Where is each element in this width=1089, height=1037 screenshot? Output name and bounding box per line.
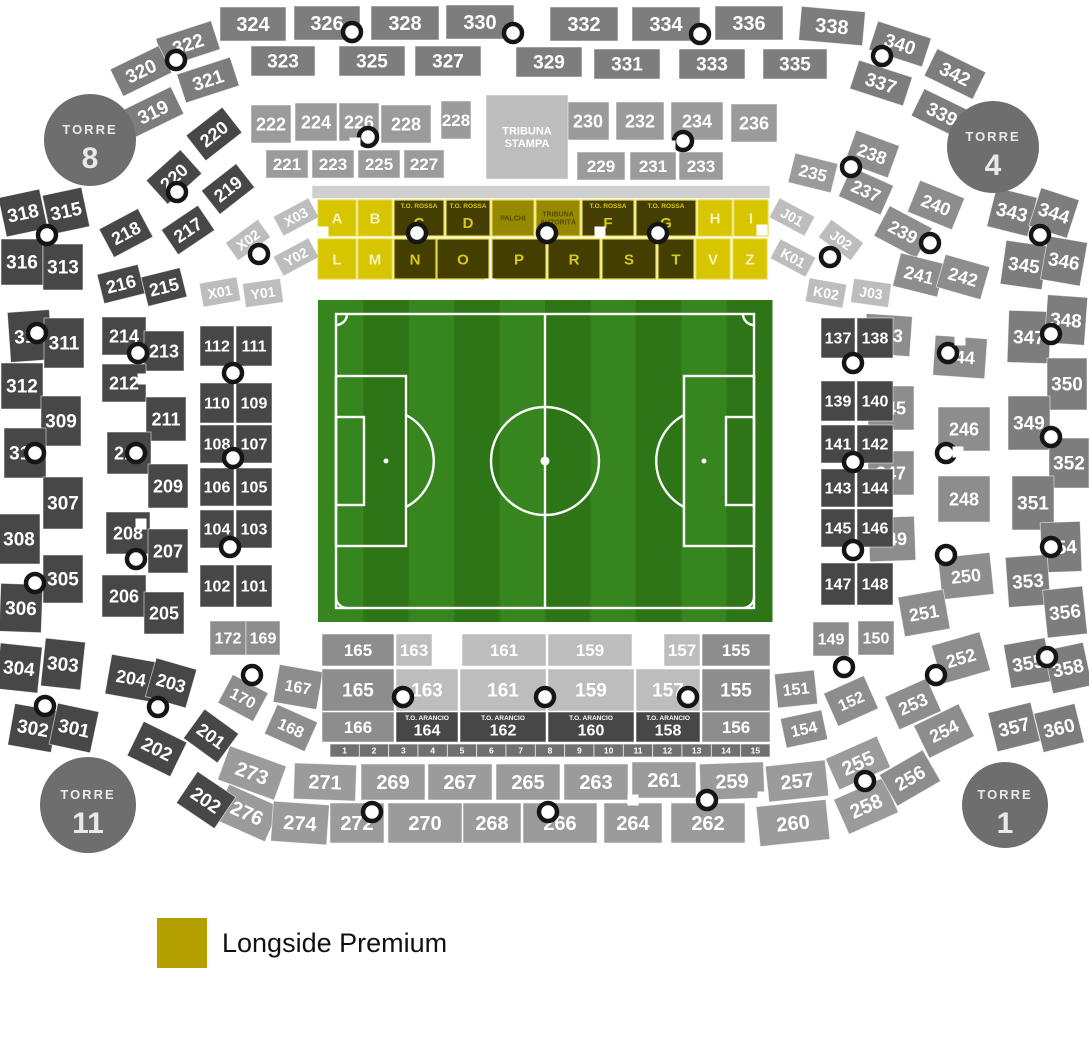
vomitory-marker-icon [757,225,768,236]
section-label: 350 [1051,375,1083,396]
section-x03[interactable]: X03 [273,198,319,236]
section-label: 137 [825,331,852,348]
svg-text:6: 6 [489,746,494,756]
section-n[interactable]: N [394,239,436,279]
gate-marker-icon [243,666,261,684]
section-label: 207 [153,541,183,561]
section-218[interactable]: 218 [99,209,153,258]
section-label: PALCHI [500,215,526,222]
section-157[interactable]: 157 [664,634,700,666]
section-label: 306 [5,598,37,620]
section-label: 262 [691,813,724,835]
section-label: 316 [6,253,38,274]
section-205[interactable]: 205 [144,592,184,634]
section-label: Z [745,251,754,268]
section-label: 328 [388,13,421,35]
svg-text:12: 12 [663,746,673,756]
section-242[interactable]: 242 [936,254,990,299]
section-350[interactable]: 350 [1047,358,1087,410]
section-label: 268 [475,813,508,835]
gate-marker-icon [937,444,955,462]
section-label: 159 [576,641,604,660]
section-151[interactable]: 151 [774,670,817,708]
section-label: M [369,251,382,268]
section-label: 271 [308,771,342,794]
section-155[interactable]: 155 [702,634,770,666]
section-248[interactable]: 248 [938,476,990,522]
section-label: 159 [575,681,607,702]
section-303[interactable]: 303 [41,638,86,690]
section-label: 260 [775,811,810,836]
section-label: 234 [682,111,712,131]
section-110[interactable]: 110 [200,383,234,423]
section-x01[interactable]: X01 [199,277,241,307]
gate-marker-icon [691,25,709,43]
section-241[interactable]: 241 [893,253,946,297]
section-label: 312 [6,377,38,398]
section-332[interactable]: 332 [550,7,618,41]
gate-marker-icon [221,538,239,556]
section-345[interactable]: 345 [1000,240,1048,289]
torre-number: 4 [985,149,1002,182]
section-269[interactable]: 269 [361,764,425,800]
section-309[interactable]: 309 [41,396,81,446]
section-label: 146 [862,521,889,538]
row-number-cell: 3 [389,744,418,757]
section-343[interactable]: 343 [987,188,1037,237]
section-label: 304 [2,657,36,681]
section-k02[interactable]: K02 [805,278,847,308]
section-j03[interactable]: J03 [851,278,892,307]
section-label: 307 [47,494,79,515]
section-label: V [708,251,718,268]
section-label: 155 [722,641,750,660]
section-r[interactable]: R [548,239,600,279]
section-101[interactable]: 101 [236,565,272,607]
section-217[interactable]: 217 [161,205,214,254]
section-150[interactable]: 150 [858,621,894,655]
gate-marker-icon [26,574,44,592]
section-138[interactable]: 138 [857,318,893,358]
section-308[interactable]: 308 [0,514,40,564]
section-label: 161 [490,641,518,660]
section-label: 333 [696,55,728,76]
section-211[interactable]: 211 [146,397,186,441]
section-label: 263 [579,772,612,794]
section-label: 104 [204,522,231,539]
section-label: 105 [241,480,268,497]
row-number-cell: 1 [330,744,359,757]
section-106[interactable]: 106 [200,468,234,506]
section-202[interactable]: 202 [127,721,187,776]
section-268[interactable]: 268 [463,803,521,843]
section-137[interactable]: 137 [821,318,855,358]
tier-bar [312,186,770,199]
section-143[interactable]: 143 [821,469,855,507]
section-222[interactable]: 222 [251,105,291,143]
section-103[interactable]: 103 [236,510,272,548]
section-323[interactable]: 323 [251,46,315,76]
section-231[interactable]: 231 [630,152,676,180]
section-267[interactable]: 267 [428,764,492,800]
section-266[interactable]: 266 [523,803,597,843]
section-167[interactable]: 167 [273,664,323,709]
section-label: 331 [611,55,643,76]
gate-marker-icon [842,158,860,176]
section-label: 221 [273,155,301,174]
section-label: 356 [1048,601,1082,625]
section-label: 250 [950,565,982,588]
section-342[interactable]: 342 [924,49,986,100]
section-331[interactable]: 331 [594,49,660,79]
section-label: 351 [1017,494,1049,515]
section-159[interactable]: 159 [548,634,632,666]
section-d[interactable]: T.O. ROSSAD [446,200,490,236]
section-216[interactable]: 216 [97,264,145,303]
section-328[interactable]: 328 [371,6,439,40]
section-sublabel: T.O. ARANCIO [646,715,690,722]
section-109[interactable]: 109 [236,383,272,423]
section-label: 313 [47,258,79,279]
section-label: TRIBUNA [542,211,574,218]
section-159[interactable]: 159 [548,669,634,711]
gate-marker-icon [408,224,426,242]
section-k01[interactable]: K01 [770,239,816,277]
vomitory-marker-icon [350,138,361,149]
section-236[interactable]: 236 [731,104,777,142]
section-label: 257 [779,769,814,794]
gate-marker-icon [835,658,853,676]
row-number-cell: 14 [711,744,740,757]
gate-marker-icon [821,248,839,266]
section-351[interactable]: 351 [1012,476,1054,530]
section-270[interactable]: 270 [388,803,462,843]
section-312[interactable]: 312 [1,363,43,409]
vomitory-marker-icon [318,227,329,238]
section-139[interactable]: 139 [821,381,855,421]
section-165[interactable]: 165 [322,669,394,711]
section-label: 259 [715,770,749,793]
section-158[interactable]: T.O. ARANCIO158 [636,712,700,742]
section-label: D [463,215,474,232]
section-149[interactable]: 149 [813,622,849,656]
row-number-cell: 9 [565,744,594,757]
section-229[interactable]: 229 [577,152,625,180]
section-324[interactable]: 324 [220,7,286,41]
section-label: 232 [625,111,655,131]
svg-text:3: 3 [401,746,406,756]
section-f[interactable]: T.O. ROSSAF [582,200,634,236]
vomitory-marker-icon [953,447,964,458]
section-224[interactable]: 224 [295,103,337,141]
section-327[interactable]: 327 [415,46,481,76]
section-b[interactable]: B [358,200,392,236]
section-357[interactable]: 357 [988,702,1040,751]
section-251[interactable]: 251 [898,589,950,636]
torre-8: TORRE8 [44,94,136,186]
section-140[interactable]: 140 [857,381,893,421]
svg-text:9: 9 [577,746,582,756]
legend: Longside Premium [157,918,447,968]
section-label: B [370,210,381,227]
section-220[interactable]: 220 [186,107,242,161]
gate-marker-icon [28,324,46,342]
section-154[interactable]: 154 [780,710,827,748]
stadium-seat-map-page: 3243263283303323343363383233253273293313… [0,0,1089,1032]
section-label: 227 [410,155,438,174]
section-166[interactable]: 166 [322,712,394,742]
gate-marker-icon [927,666,945,684]
section-label: 353 [1012,571,1045,594]
section-label: 261 [647,770,680,792]
section-s[interactable]: S [602,239,656,279]
section-336[interactable]: 336 [715,6,783,40]
torre-number: 1 [997,807,1014,840]
row-number-cell: 7 [506,744,535,757]
section-label: 329 [533,53,565,74]
section-label: 140 [862,394,889,411]
svg-text:15: 15 [751,746,761,756]
section-label: T [671,251,680,268]
section-219[interactable]: 219 [201,164,254,215]
section-264[interactable]: 264 [604,803,662,843]
section-label: P [514,251,524,268]
svg-text:4: 4 [430,746,435,756]
section-y02[interactable]: Y02 [273,238,319,276]
section-233[interactable]: 233 [679,152,723,180]
section-label: 338 [814,15,849,40]
section-label: 323 [267,52,299,73]
section-label: R [569,251,580,268]
section-sublabel: T.O. ROSSA [450,203,487,210]
section-tribuna-stampa[interactable]: TRIBUNASTAMPA [486,95,568,179]
section-225[interactable]: 225 [358,150,400,178]
gate-marker-icon [129,344,147,362]
section-label: 158 [655,722,682,739]
pitch-stripe [500,300,546,622]
section-261[interactable]: 261 [632,762,696,798]
section-label: 112 [204,339,230,356]
section-palchi[interactable]: PALCHI [492,200,534,236]
section-label: 142 [862,437,889,454]
section-160[interactable]: T.O. ARANCIO160 [548,712,634,742]
section-207[interactable]: 207 [148,529,188,573]
row-number-cell: 11 [623,744,652,757]
section-p[interactable]: P [492,239,546,279]
section-156[interactable]: 156 [702,712,770,742]
gate-marker-icon [844,541,862,559]
section-325[interactable]: 325 [339,46,405,76]
section-y01[interactable]: Y01 [243,278,284,307]
gate-marker-icon [224,364,242,382]
vomitory-marker-icon [955,335,966,346]
section-label: 102 [204,579,231,596]
section-163[interactable]: 163 [396,634,432,666]
section-105[interactable]: 105 [236,468,272,506]
section-227[interactable]: 227 [404,150,444,178]
section-label: 274 [283,812,319,836]
section-208[interactable]: 208 [106,512,150,554]
section-label: 269 [376,772,409,794]
section-label: 303 [46,653,80,677]
section-label: 336 [732,13,765,35]
gate-marker-icon [167,51,185,69]
section-o[interactable]: O [437,239,489,279]
section-label: 222 [256,114,286,134]
section-label: 231 [639,157,667,176]
section-164[interactable]: T.O. ARANCIO164 [396,712,458,742]
section-172[interactable]: 172 [210,621,246,655]
vomitory-marker-icon [136,519,147,530]
torre-1: TORRE1 [962,762,1048,848]
section-221[interactable]: 221 [266,150,308,178]
gate-marker-icon [539,803,557,821]
section-228[interactable]: 228 [381,105,431,143]
section-t[interactable]: T [658,239,694,279]
legend-label: Longside Premium [222,928,447,958]
section-148[interactable]: 148 [857,563,893,605]
section-316[interactable]: 316 [1,239,43,285]
vomitory-marker-icon [665,141,676,152]
section-304[interactable]: 304 [0,643,42,693]
section-232[interactable]: 232 [616,102,664,140]
section-label: 162 [490,722,517,739]
section-label: 205 [149,603,179,623]
gate-marker-icon [38,226,56,244]
section-label: 160 [578,722,605,739]
section-168[interactable]: 168 [264,704,317,751]
section-356[interactable]: 356 [1043,586,1088,638]
section-213[interactable]: 213 [144,331,184,371]
section-313[interactable]: 313 [43,244,83,290]
section-102[interactable]: 102 [200,565,234,607]
gate-marker-icon [939,344,957,362]
section-215[interactable]: 215 [141,268,187,307]
section-333[interactable]: 333 [679,49,745,79]
section-112[interactable]: 112 [200,326,234,366]
gate-marker-icon [127,550,145,568]
section-h[interactable]: H [698,200,732,236]
section-label: 103 [241,522,268,539]
section-v[interactable]: V [696,239,730,279]
svg-text:2: 2 [372,746,377,756]
section-161[interactable]: 161 [462,634,546,666]
section-152[interactable]: 152 [824,676,879,727]
section-l[interactable]: L [318,239,356,279]
section-label: 308 [3,530,35,551]
section-label: 325 [356,52,388,73]
gate-marker-icon [168,183,186,201]
section-209[interactable]: 209 [148,464,188,508]
section-235[interactable]: 235 [788,153,838,193]
torre-number: 11 [72,807,104,840]
section-265[interactable]: 265 [496,764,560,800]
section-307[interactable]: 307 [43,477,83,529]
section-label: 223 [319,155,347,174]
section-155[interactable]: 155 [702,669,770,711]
gate-marker-icon [698,791,716,809]
gate-marker-icon [937,546,955,564]
section-263[interactable]: 263 [564,764,628,800]
section-label: 265 [511,772,544,794]
section-144[interactable]: 144 [857,469,893,507]
section-label: 149 [818,632,845,649]
section-sublabel: T.O. ARANCIO [481,715,525,722]
section-label: 345 [1007,254,1042,279]
section-label: 309 [45,412,77,433]
svg-text:14: 14 [721,746,731,756]
row-number-cell: 10 [594,744,623,757]
section-346[interactable]: 346 [1040,236,1087,286]
stadium-seat-map: 3243263283303323343363383233253273293313… [0,0,1089,1032]
section-j01[interactable]: J01 [769,198,815,236]
section-label: 166 [344,718,372,737]
section-320[interactable]: 320 [110,46,172,97]
section-label: 335 [779,55,811,76]
section-label: 147 [825,577,852,594]
section-338[interactable]: 338 [799,6,866,45]
section-230[interactable]: 230 [567,102,609,140]
section-169[interactable]: 169 [246,621,280,655]
section-301[interactable]: 301 [49,703,99,753]
gate-marker-icon [1042,325,1060,343]
section-311[interactable]: 311 [44,318,84,368]
section-label: 264 [616,813,650,835]
section-111[interactable]: 111 [236,326,272,366]
section-label: 248 [949,489,979,509]
row-number-cell: 12 [653,744,682,757]
section-165[interactable]: 165 [322,634,394,666]
torre-label: TORRE [62,122,117,137]
section-329[interactable]: 329 [516,47,582,77]
section-206[interactable]: 206 [102,575,146,617]
section-360[interactable]: 360 [1034,704,1084,753]
section-162[interactable]: T.O. ARANCIO162 [460,712,546,742]
section-label: 228 [391,114,421,134]
section-271[interactable]: 271 [293,763,356,801]
section-147[interactable]: 147 [821,563,855,605]
section-label: 324 [236,14,270,36]
section-label: 143 [825,481,852,498]
vomitory-marker-icon [628,795,639,806]
section-161[interactable]: 161 [460,669,546,711]
section-335[interactable]: 335 [763,49,827,79]
row-number-cell: 15 [741,744,770,757]
section-146[interactable]: 146 [857,509,893,547]
section-274[interactable]: 274 [271,801,330,845]
gate-marker-icon [127,444,145,462]
section-label: 151 [782,680,810,700]
section-228[interactable]: 228 [441,101,471,139]
section-label: 164 [414,722,441,739]
section-label: A [332,210,343,227]
gate-marker-icon [26,444,44,462]
section-260[interactable]: 260 [756,799,830,846]
section-223[interactable]: 223 [312,150,354,178]
section-label: S [624,251,634,268]
svg-text:5: 5 [460,746,465,756]
section-label: 150 [863,631,890,648]
section-z[interactable]: Z [733,239,767,279]
section-label: 330 [463,12,496,34]
section-label: 305 [47,570,79,591]
section-257[interactable]: 257 [765,760,828,802]
section-label: L [332,251,341,268]
vomitory-marker-icon [485,279,496,290]
section-m[interactable]: M [358,239,392,279]
section-305[interactable]: 305 [43,555,83,603]
section-label: I [749,210,753,227]
